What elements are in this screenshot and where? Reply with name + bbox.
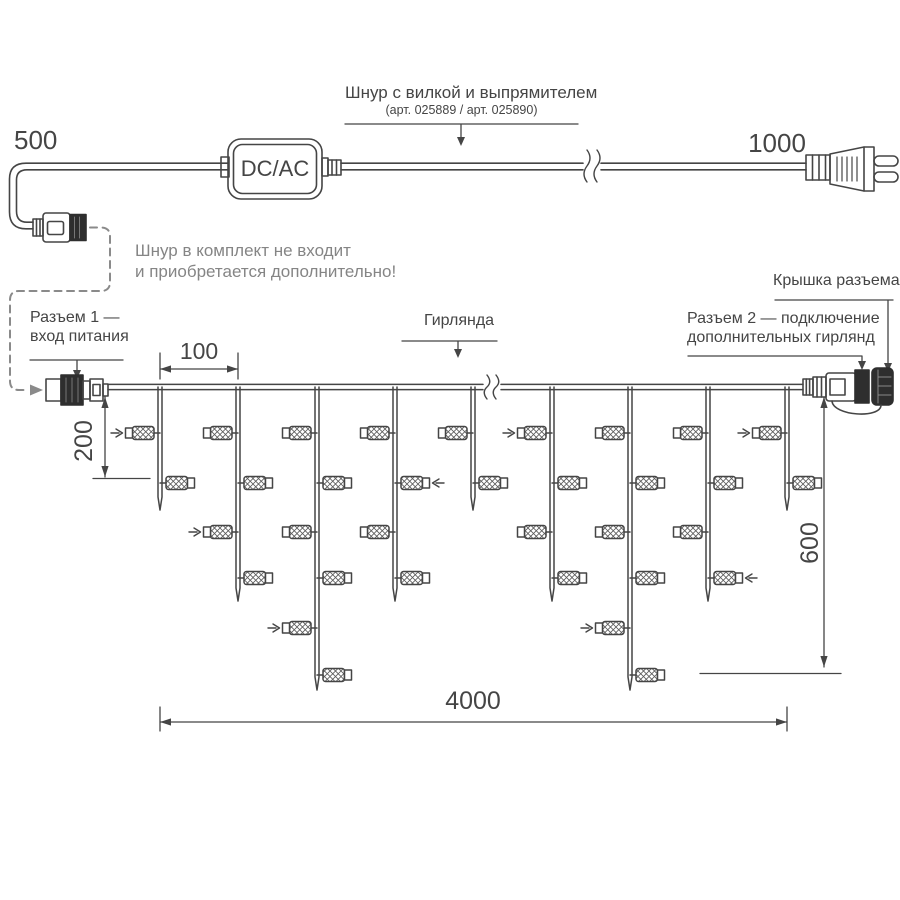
leader-arrow-icon bbox=[30, 385, 43, 396]
bulb-cap bbox=[736, 573, 743, 583]
power-cord-right-section bbox=[341, 150, 806, 182]
arrow-down-icon bbox=[454, 349, 462, 358]
bulb-cap bbox=[266, 478, 273, 488]
dim-500-label: 500 bbox=[14, 125, 57, 156]
cord-break-icon bbox=[594, 150, 600, 182]
bulb-cap bbox=[126, 428, 133, 438]
bulb bbox=[290, 427, 312, 440]
bulb bbox=[603, 526, 625, 539]
bulb-cap bbox=[815, 478, 822, 488]
bulb bbox=[211, 427, 233, 440]
garland-connector-1 bbox=[46, 375, 108, 405]
cap-label: Крышка разъема bbox=[773, 272, 893, 290]
connector2-label: Разъем 2 — подключение дополнительных ги… bbox=[687, 309, 863, 347]
icicle-garland-diagram: 500 1000 DC/AC Шнур с вилкой и выпрямите… bbox=[0, 0, 900, 900]
bulb-cap bbox=[361, 428, 368, 438]
bulb-cap bbox=[674, 428, 681, 438]
drop-wire bbox=[393, 387, 397, 601]
dim-arrow-icon bbox=[160, 365, 171, 372]
cord-callout-label: Шнур с вилкой и выпрямителем bbox=[345, 83, 578, 103]
bulb-cap bbox=[439, 428, 446, 438]
bulb-cap bbox=[753, 428, 760, 438]
bulb-cap bbox=[501, 478, 508, 488]
dim-arrow-icon bbox=[820, 656, 827, 667]
bulb bbox=[479, 477, 501, 490]
bulb bbox=[681, 427, 703, 440]
note-line2: и приобретается дополнительно! bbox=[135, 261, 396, 282]
drop-wire bbox=[706, 387, 710, 601]
connector1-line1: Разъем 1 — bbox=[30, 308, 129, 327]
bulb bbox=[290, 526, 312, 539]
dim-100-label: 100 bbox=[172, 338, 226, 365]
cord-break-icon bbox=[584, 150, 590, 182]
bulb bbox=[166, 477, 188, 490]
bulb bbox=[244, 477, 266, 490]
garland-callout-line bbox=[402, 341, 497, 350]
bulb bbox=[558, 572, 580, 585]
bulb bbox=[401, 477, 423, 490]
bulb bbox=[446, 427, 468, 440]
bulb-cap bbox=[658, 670, 665, 680]
bulb bbox=[558, 477, 580, 490]
connector1-callout-line bbox=[30, 360, 123, 371]
bulb-cap bbox=[658, 573, 665, 583]
drop-wire bbox=[550, 387, 554, 601]
bulb bbox=[323, 669, 345, 682]
bulb-cap bbox=[423, 478, 430, 488]
cord-callout-line bbox=[345, 124, 578, 138]
bulb-cap bbox=[674, 527, 681, 537]
bulb bbox=[133, 427, 155, 440]
flash-mark-icon bbox=[433, 479, 445, 487]
garland-label: Гирлянда bbox=[400, 312, 518, 330]
bulb bbox=[760, 427, 782, 440]
garland-wire bbox=[108, 384, 803, 389]
flash-mark-icon bbox=[111, 429, 123, 437]
bulb bbox=[525, 427, 547, 440]
bulb bbox=[211, 526, 233, 539]
dim-4000-label: 4000 bbox=[432, 687, 514, 716]
bulb bbox=[793, 477, 815, 490]
dim-arrow-icon bbox=[101, 466, 108, 477]
spare-cord-connector bbox=[33, 213, 86, 242]
bulb bbox=[368, 427, 390, 440]
bulb-cap bbox=[596, 527, 603, 537]
wire-break-icon bbox=[484, 375, 499, 399]
cord-callout-sublabel: (арт. 025889 / арт. 025890) bbox=[345, 103, 578, 117]
dim-arrow-icon bbox=[776, 718, 787, 725]
bulb bbox=[603, 427, 625, 440]
bulb-cap bbox=[423, 573, 430, 583]
dim-arrow-icon bbox=[227, 365, 238, 372]
dcac-label: DC/AC bbox=[233, 156, 317, 182]
bulb bbox=[290, 622, 312, 635]
garland-structure bbox=[108, 375, 822, 690]
dim-200-label: 200 bbox=[70, 409, 98, 473]
bulb bbox=[714, 477, 736, 490]
connector2-line1: Разъем 2 — подключение bbox=[687, 309, 863, 328]
bulb-cap bbox=[658, 478, 665, 488]
arrow-down-icon bbox=[858, 361, 866, 370]
bulb-cap bbox=[266, 573, 273, 583]
bulb-cap bbox=[580, 478, 587, 488]
connector2-line2: дополнительных гирлянд bbox=[687, 328, 863, 347]
bulb bbox=[401, 572, 423, 585]
flash-mark-icon bbox=[581, 624, 593, 632]
bulb-cap bbox=[283, 428, 290, 438]
bulb-cap bbox=[518, 428, 525, 438]
bulb bbox=[636, 572, 658, 585]
bulb-cap bbox=[345, 478, 352, 488]
bulb bbox=[714, 572, 736, 585]
flash-mark-icon bbox=[189, 528, 201, 536]
bulb-cap bbox=[204, 428, 211, 438]
flash-mark-icon bbox=[503, 429, 515, 437]
bulb-cap bbox=[204, 527, 211, 537]
bulb-cap bbox=[345, 573, 352, 583]
bulb-cap bbox=[283, 527, 290, 537]
arrow-down-icon bbox=[457, 137, 465, 146]
flash-mark-icon bbox=[738, 429, 750, 437]
bulb-cap bbox=[596, 428, 603, 438]
connector-cap-icon bbox=[872, 368, 893, 405]
power-plug-icon bbox=[806, 147, 898, 191]
bulb bbox=[323, 572, 345, 585]
bulb-cap bbox=[361, 527, 368, 537]
spare-cord-note: Шнур в комплект не входит и приобретаетс… bbox=[135, 240, 396, 282]
bulb-cap bbox=[518, 527, 525, 537]
bulb-cap bbox=[596, 623, 603, 633]
bulb-cap bbox=[345, 670, 352, 680]
drop-wire bbox=[471, 387, 475, 510]
dim-arrow-icon bbox=[160, 718, 171, 725]
dim-600-label: 600 bbox=[796, 511, 824, 575]
drop-wire bbox=[158, 387, 162, 510]
bulb-cap bbox=[188, 478, 195, 488]
bulb bbox=[368, 526, 390, 539]
garland-connector-2 bbox=[803, 368, 893, 414]
bulb bbox=[603, 622, 625, 635]
connector1-line2: вход питания bbox=[30, 327, 129, 346]
bulb-cap bbox=[580, 573, 587, 583]
bulb-cap bbox=[736, 478, 743, 488]
bulb bbox=[244, 572, 266, 585]
connector1-label: Разъем 1 — вход питания bbox=[30, 308, 129, 346]
bulb-cap bbox=[283, 623, 290, 633]
bulb bbox=[681, 526, 703, 539]
drop-wire bbox=[236, 387, 240, 601]
bulb bbox=[636, 669, 658, 682]
flash-mark-icon bbox=[268, 624, 280, 632]
dim-1000-label: 1000 bbox=[745, 128, 809, 159]
flash-mark-icon bbox=[746, 574, 758, 582]
bulb bbox=[525, 526, 547, 539]
bulb bbox=[323, 477, 345, 490]
bulb bbox=[636, 477, 658, 490]
connector2-callout-line bbox=[688, 356, 862, 361]
drop-wire bbox=[785, 387, 789, 510]
note-line1: Шнур в комплект не входит bbox=[135, 240, 396, 261]
